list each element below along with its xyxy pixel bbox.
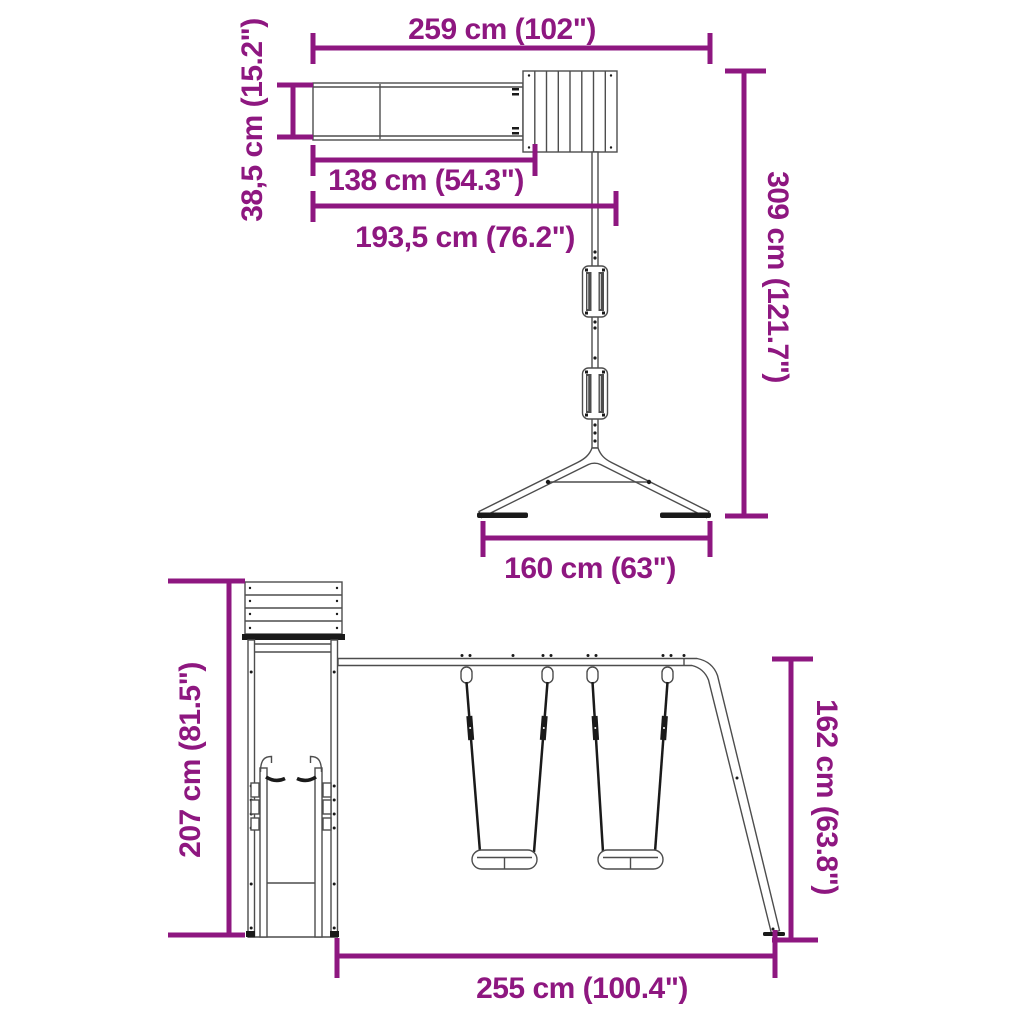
- swing-hanger-top-1: [583, 266, 608, 317]
- slide-side: [251, 757, 331, 938]
- dim-footprint-length-line: [337, 930, 775, 978]
- dimension-label-tower-height: 207 cm (81.5"): [174, 662, 208, 858]
- diagram-linework: [0, 0, 1024, 1024]
- dim-slide-depth-line: [277, 85, 313, 137]
- dimension-label-footprint-length: 255 cm (100.4"): [476, 972, 688, 1006]
- dimension-diagram: 259 cm (102") 38,5 cm (15.2") 138 cm (54…: [0, 0, 1024, 1024]
- dimension-label-slide-depth: 38,5 cm (15.2"): [236, 18, 270, 222]
- swing-hanger-top-2: [583, 368, 608, 419]
- swing-1: [461, 667, 553, 869]
- dimension-label-total-width: 259 cm (102"): [408, 13, 596, 47]
- side-view-drawing: [168, 581, 818, 978]
- dimension-label-base-width: 160 cm (63"): [504, 552, 676, 586]
- roof-side: [242, 582, 345, 640]
- swing-2: [587, 667, 673, 869]
- slide-top: [313, 83, 523, 140]
- swing-beam-side: [338, 654, 785, 936]
- dimension-label-slide-length: 138 cm (54.3"): [328, 164, 524, 198]
- roof-top: [523, 71, 617, 152]
- dimension-label-swing-height: 162 cm (63.8"): [809, 699, 843, 895]
- dimension-label-total-length: 309 cm (121.7"): [760, 171, 794, 383]
- swing-base-top: [477, 448, 711, 518]
- top-view-drawing: [277, 33, 768, 557]
- dimension-label-tower-length: 193,5 cm (76.2"): [355, 221, 575, 255]
